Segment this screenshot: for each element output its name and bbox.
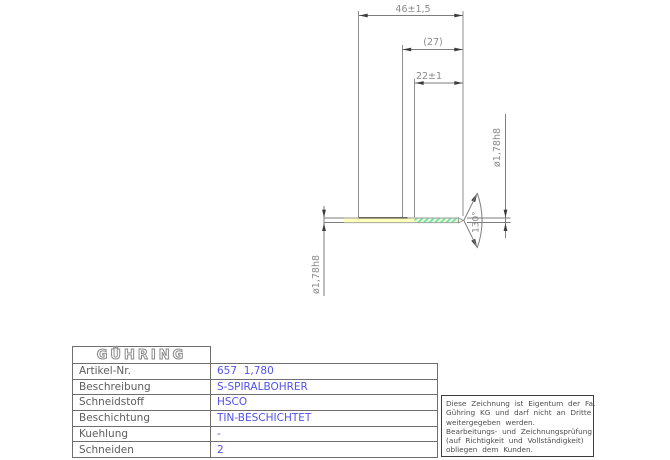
row-label-kuehlung: Kuehlung [73,426,211,442]
dim-point-angle-label: 130° [472,211,482,233]
row-value-beschreibung: S-SPIRALBOHRER [211,379,438,395]
row-label-beschreibung: Beschreibung [73,379,211,395]
notice-line: obliegen dem Kunden. [446,445,590,454]
drill-body [344,218,463,223]
notice-box: Diese Zeichnung ist Eigentum der Fa. Güh… [441,395,594,457]
table-row: Kuehlung - [73,426,438,442]
extension-lines [359,11,464,217]
dim-overall-length-label: 46±1,5 [395,4,430,15]
dim-diameter-left-label: ø1,78h8 [311,255,322,294]
dim-ref-length-label: (27) [423,37,443,48]
titleblock-table: Artikel-Nr. 657 1,780 Beschreibung S-SPI… [72,363,438,458]
guehring-logo: GÜHRING [97,349,187,362]
row-value-beschichtung: TIN-BESCHICHTET [211,411,438,427]
dim-flute-length-label: 22±1 [416,71,442,82]
dim-diameter-right-label: ø1,78h8 [492,128,503,167]
table-row: Schneidstoff HSCO [73,395,438,411]
row-value-schneidstoff: HSCO [211,395,438,411]
row-label-beschichtung: Beschichtung [73,411,211,427]
notice-line: (auf Richtigkeit und Vollständigkeit) [446,436,590,445]
technical-drawing-page: 46±1,5 (27) 22±1 ø1,78h8 ø1,78h8 130° GÜ… [0,0,670,460]
logo-cell: GÜHRING [72,346,211,364]
notice-line: Bearbeitungs- und Zeichnungsprüfung [446,427,590,436]
dimension-lines [324,16,511,297]
row-label-schneiden: Schneiden [73,442,211,458]
notice-line: Diese Zeichnung ist Eigentum der Fa. [446,399,590,408]
row-label-schneidstoff: Schneidstoff [73,395,211,411]
drill-point-tip [459,218,464,223]
titleblock: GÜHRING Artikel-Nr. 657 1,780 Beschreibu… [72,346,438,458]
table-row: Artikel-Nr. 657 1,780 [73,364,438,380]
row-value-kuehlung: - [211,426,438,442]
notice-line: weitergegeben werden. [446,418,590,427]
table-row: Schneiden 2 [73,442,438,458]
row-value-schneiden: 2 [211,442,438,458]
table-row: Beschreibung S-SPIRALBOHRER [73,379,438,395]
row-value-artikel-nr: 657 1,780 [211,364,438,380]
drill-flute-coated [415,218,459,223]
notice-line: Gühring KG und darf nicht an Dritte [446,408,590,417]
table-row: Beschichtung TIN-BESCHICHTET [73,411,438,427]
row-label-artikel-nr: Artikel-Nr. [73,364,211,380]
